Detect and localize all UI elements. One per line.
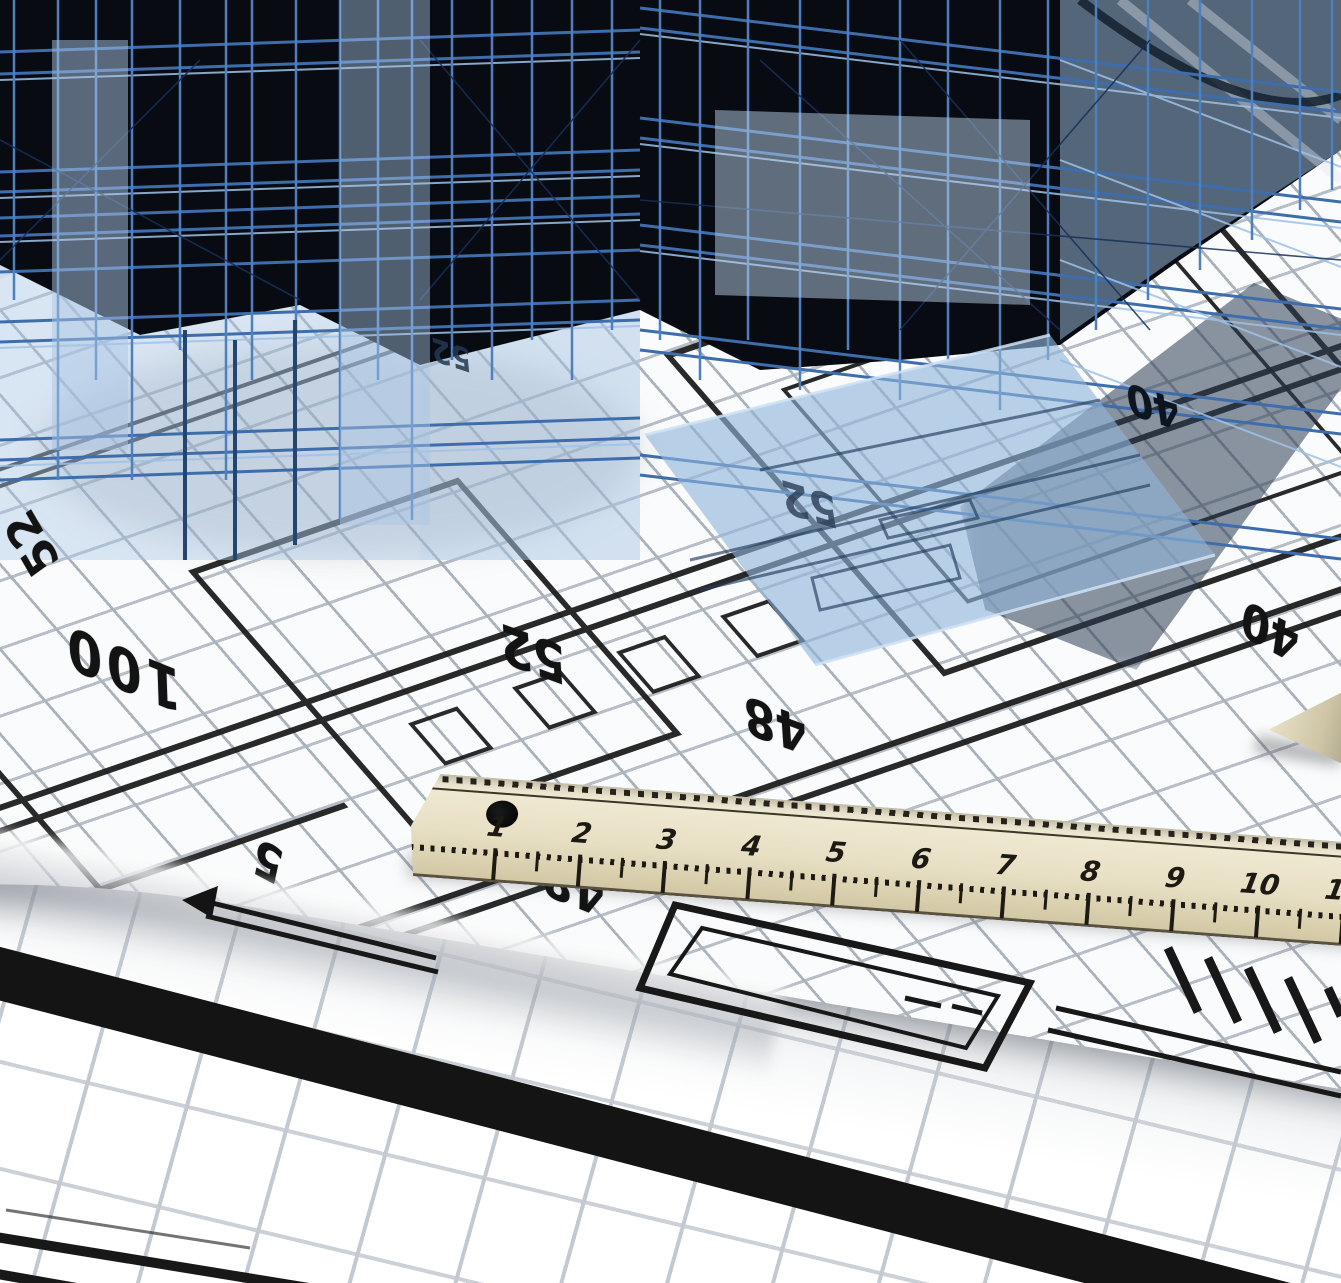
roll-plan-linework xyxy=(0,0,1341,1283)
ruler-tick-half xyxy=(1213,902,1217,922)
ruler-number: 8 xyxy=(1068,854,1114,890)
ruler-number: 3 xyxy=(644,822,690,858)
ruler-tick-half xyxy=(874,877,878,897)
ruler-tick-half xyxy=(1043,890,1047,910)
ruler-number: 1 xyxy=(474,809,520,845)
ruler-number: 9 xyxy=(1152,860,1198,896)
ruler-tick-half xyxy=(535,851,539,871)
ruler-number: 7 xyxy=(983,847,1029,883)
ruler-number: 5 xyxy=(813,834,859,870)
dimension-arrowhead xyxy=(182,886,218,918)
ruler-tick-half xyxy=(1298,909,1302,929)
ruler-tick-half xyxy=(959,883,963,903)
ruler-tick-half xyxy=(1128,896,1132,916)
ruler-number: 4 xyxy=(728,828,774,864)
ruler-number: 2 xyxy=(559,815,605,851)
ruler-number: 6 xyxy=(898,841,944,877)
ruler-tick-half xyxy=(789,870,793,890)
ruler-tick-half xyxy=(704,864,708,884)
ruler-tick-half xyxy=(620,858,624,878)
ruler-number: 11 xyxy=(1322,873,1341,909)
blueprint-photo-scene: 52 100 52 48 40 40 5 48 52 52 xyxy=(0,0,1341,1283)
ruler-number: 10 xyxy=(1237,866,1283,902)
